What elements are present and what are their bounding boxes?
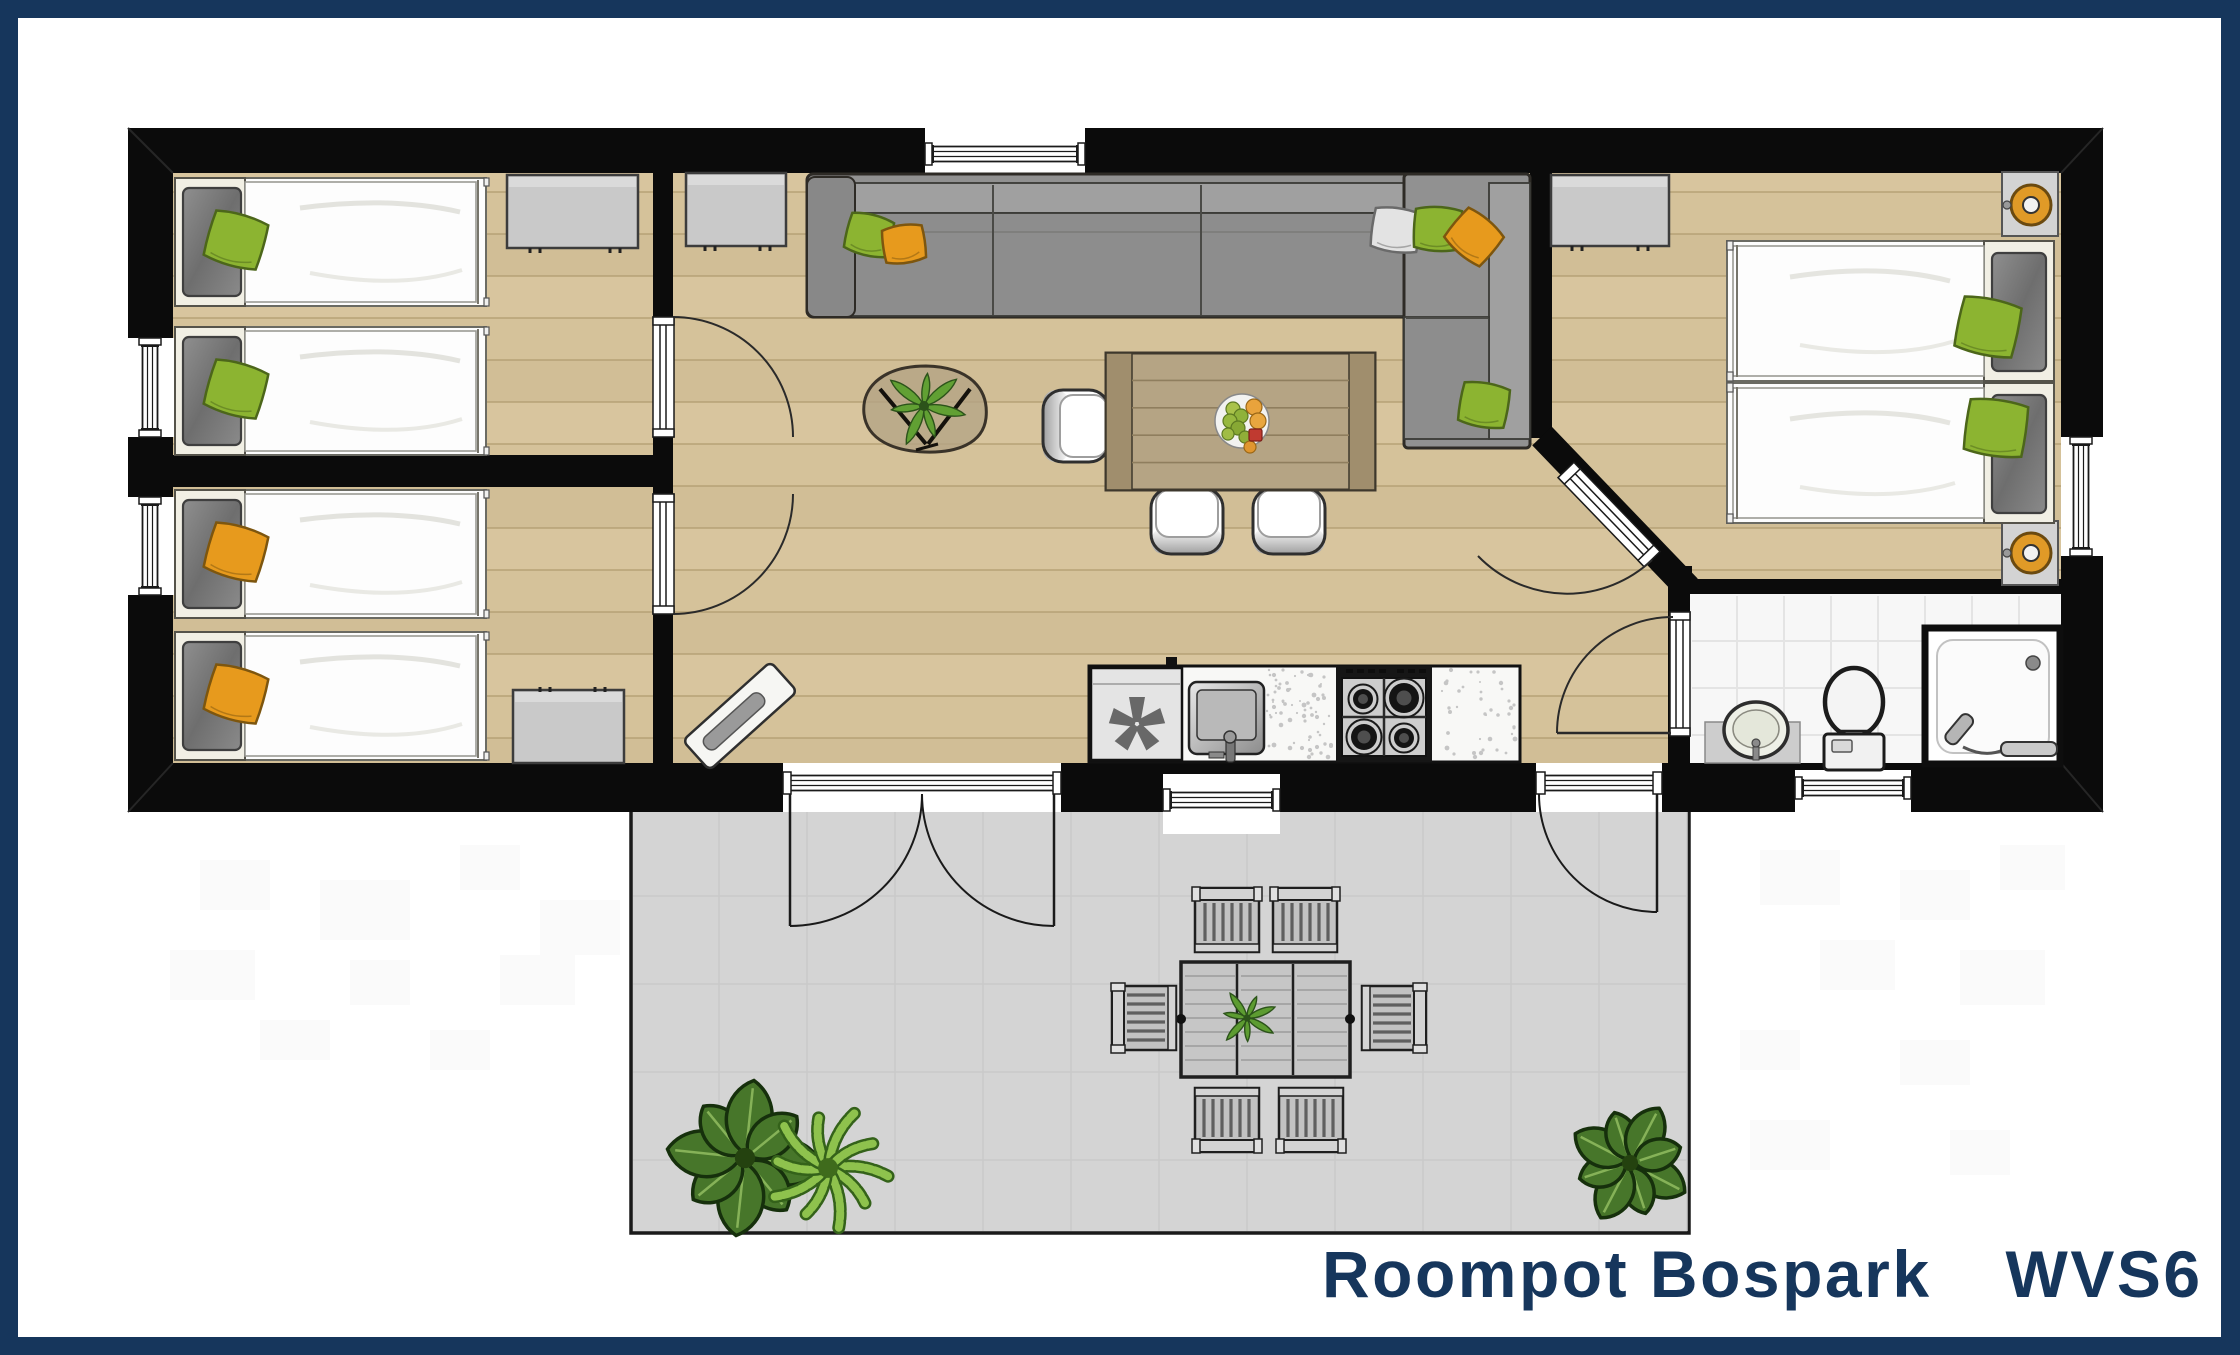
svg-text:Roompot BosparkWVS6: Roompot BosparkWVS6 bbox=[1322, 1237, 2203, 1311]
